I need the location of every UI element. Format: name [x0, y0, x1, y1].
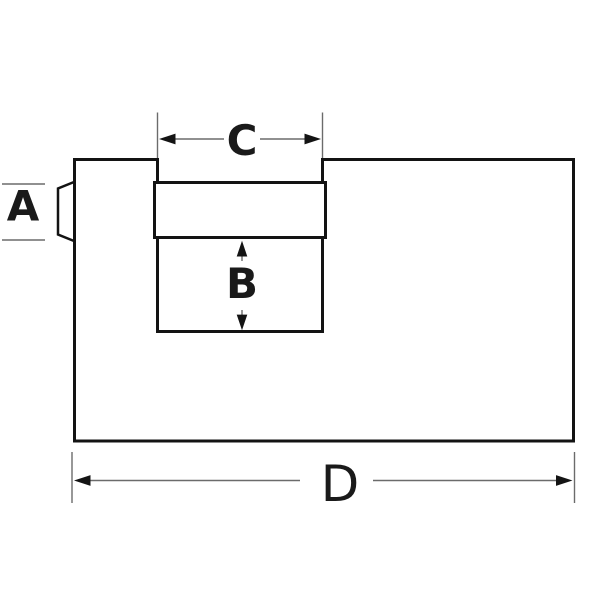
dim-label-d: D [321, 455, 360, 513]
dim-label-c: C [227, 116, 258, 165]
padlock-dimension-diagram: A C B D [0, 0, 600, 600]
side-pin [58, 182, 74, 241]
dim-label-b: B [226, 259, 258, 308]
dim-label-a: A [7, 182, 40, 231]
shackle-bar [155, 183, 326, 238]
diagram-canvas: A C B D [0, 0, 600, 600]
